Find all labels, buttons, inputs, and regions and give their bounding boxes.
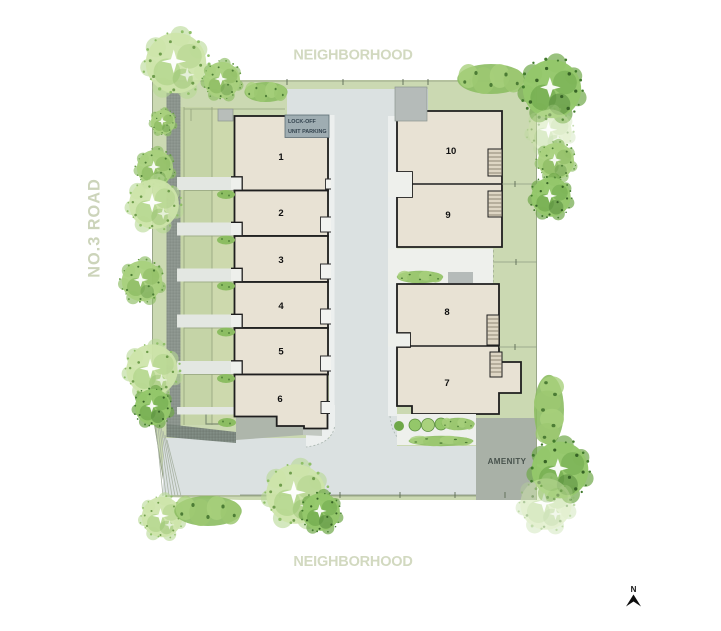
svg-text:7: 7 [444,378,449,389]
svg-text:10: 10 [446,146,457,157]
svg-text:8: 8 [444,307,449,318]
svg-text:NEIGHBORHOOD: NEIGHBORHOOD [293,554,412,570]
svg-text:AMENITY: AMENITY [488,457,527,466]
svg-text:9: 9 [445,210,450,221]
svg-text:N: N [631,585,637,594]
svg-text:LOCK-OFF: LOCK-OFF [288,119,317,125]
svg-text:2: 2 [278,208,283,219]
svg-text:UNIT PARKING: UNIT PARKING [288,129,327,135]
svg-text:3: 3 [278,255,283,266]
svg-text:1: 1 [278,152,284,163]
svg-text:NO.3 ROAD: NO.3 ROAD [86,178,104,277]
svg-text:6: 6 [277,394,282,405]
svg-text:4: 4 [278,301,284,312]
svg-text:5: 5 [278,347,284,358]
svg-text:NEIGHBORHOOD: NEIGHBORHOOD [293,48,412,64]
